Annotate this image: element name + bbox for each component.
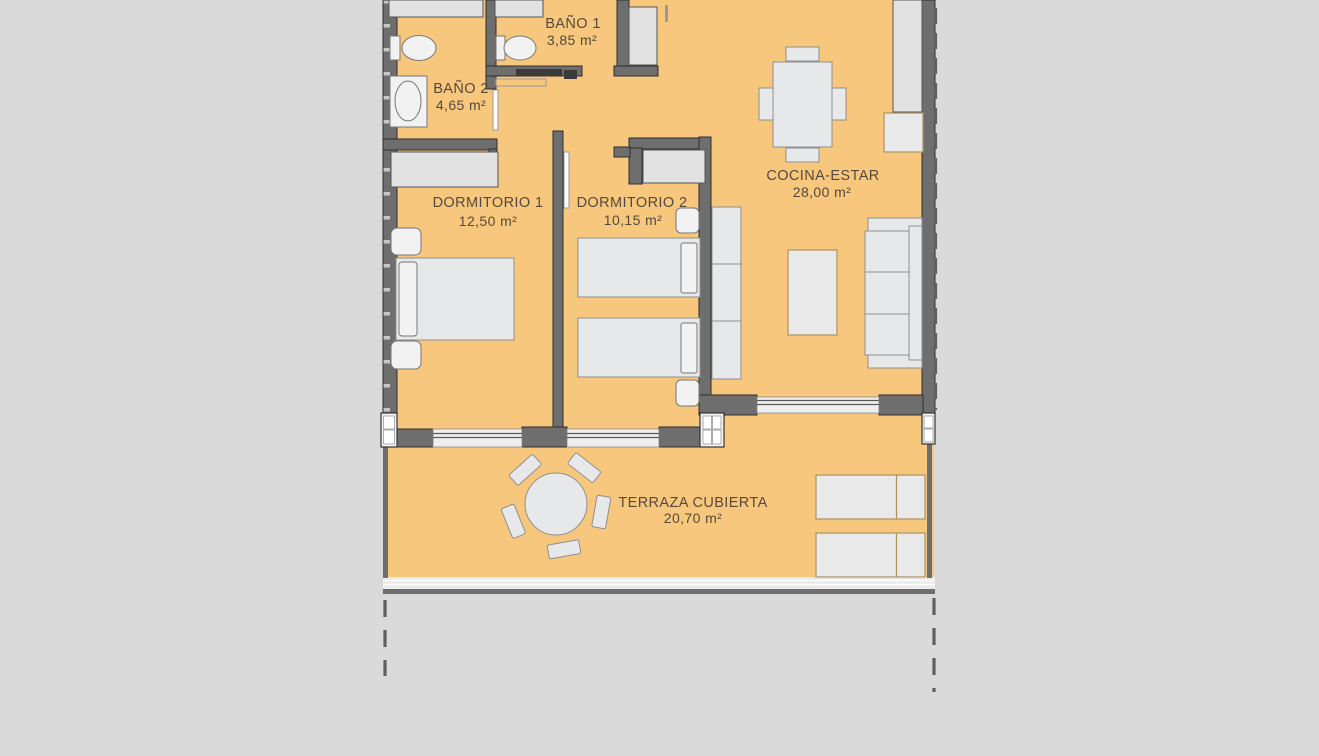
room-name-dorm-2: DORMITORIO 2 — [577, 195, 688, 211]
floor-plan-drawing: BAÑO 1 3,85 m² BAÑO 2 4,65 m² DORMITORIO… — [0, 0, 1319, 756]
room-area-dorm-1: 12,50 m² — [459, 213, 517, 229]
coffee-table — [788, 250, 837, 335]
round-table — [525, 473, 587, 535]
door-leaf-dorm2 — [564, 152, 569, 208]
dining-chair — [786, 47, 819, 61]
bench-seat — [712, 207, 741, 379]
kitchen-counter — [893, 0, 922, 112]
dining-chair — [786, 148, 819, 162]
bathtub-bano2 — [390, 76, 427, 127]
dining-table — [773, 62, 832, 147]
wardrobe-dorm2 — [643, 150, 705, 183]
wall-shower-bottom — [614, 66, 658, 76]
terrace-edge-step — [383, 577, 935, 589]
toilet-bano2 — [390, 36, 436, 61]
outer-wall-right — [922, 0, 935, 415]
wall-window-seg-2 — [522, 427, 567, 447]
sun-lounger-1 — [816, 475, 925, 519]
nightstand — [391, 341, 421, 369]
bed-pillow — [681, 243, 697, 293]
wall-window-seg-3 — [659, 427, 702, 447]
sun-lounger-2 — [816, 533, 925, 577]
vanity-counter-bano2 — [389, 0, 483, 17]
room-name-bano-2: BAÑO 2 — [433, 80, 489, 97]
room-name-cocina: COCINA-ESTAR — [766, 168, 879, 184]
wall-dorm2-door-jamb — [614, 147, 630, 157]
dining-chair — [832, 88, 846, 120]
kitchen-appliance — [884, 113, 923, 152]
wall-dorm1-dorm2 — [553, 131, 563, 447]
sofa — [865, 218, 922, 368]
nightstand — [676, 380, 699, 406]
wall-window-seg-1 — [395, 429, 433, 447]
corner-pillar-left — [381, 413, 397, 447]
corner-pillar-right — [922, 413, 935, 444]
dorm1-furniture — [391, 152, 514, 369]
dining-chair — [759, 88, 773, 120]
wall-dorm2-closet-side — [629, 148, 642, 184]
wall-living-bottom-left — [699, 395, 757, 415]
room-area-cocina: 28,00 m² — [793, 184, 851, 200]
room-name-bano-1: BAÑO 1 — [545, 15, 601, 32]
vanity-counter-bano1 — [495, 0, 543, 17]
room-area-bano-2: 4,65 m² — [436, 97, 486, 113]
terrace-front-line — [383, 589, 935, 594]
outer-wall-left — [383, 0, 397, 447]
nightstand — [391, 228, 421, 255]
room-name-dorm-1: DORMITORIO 1 — [433, 195, 544, 211]
door-leaf-kitchen — [665, 5, 668, 22]
wall-shower — [617, 0, 629, 75]
corner-pillar-middle — [700, 413, 724, 447]
room-area-dorm-2: 10,15 m² — [604, 212, 662, 228]
nightstand — [676, 208, 699, 233]
door-hinge-block — [564, 70, 577, 79]
terrace-side-right — [927, 443, 932, 578]
bed-pillow — [681, 323, 697, 373]
wall-bath-dorm1 — [383, 139, 497, 150]
floor-plan-canvas: BAÑO 1 3,85 m² BAÑO 2 4,65 m² DORMITORIO… — [0, 0, 1319, 756]
shower-tray-bano1 — [629, 7, 657, 65]
room-area-bano-1: 3,85 m² — [547, 32, 597, 48]
wall-living-bottom-right — [879, 395, 923, 415]
room-area-terraza: 20,70 m² — [664, 510, 722, 526]
terrace-side-left — [383, 447, 388, 578]
wardrobe-dorm1 — [391, 152, 498, 187]
bed-pillow — [399, 262, 417, 336]
door-leaf-bano2 — [493, 90, 498, 130]
wall-dorm2-top — [629, 138, 710, 149]
toilet-bano1 — [496, 36, 536, 60]
towel-rail — [516, 69, 562, 76]
room-name-terraza: TERRAZA CUBIERTA — [618, 495, 767, 511]
